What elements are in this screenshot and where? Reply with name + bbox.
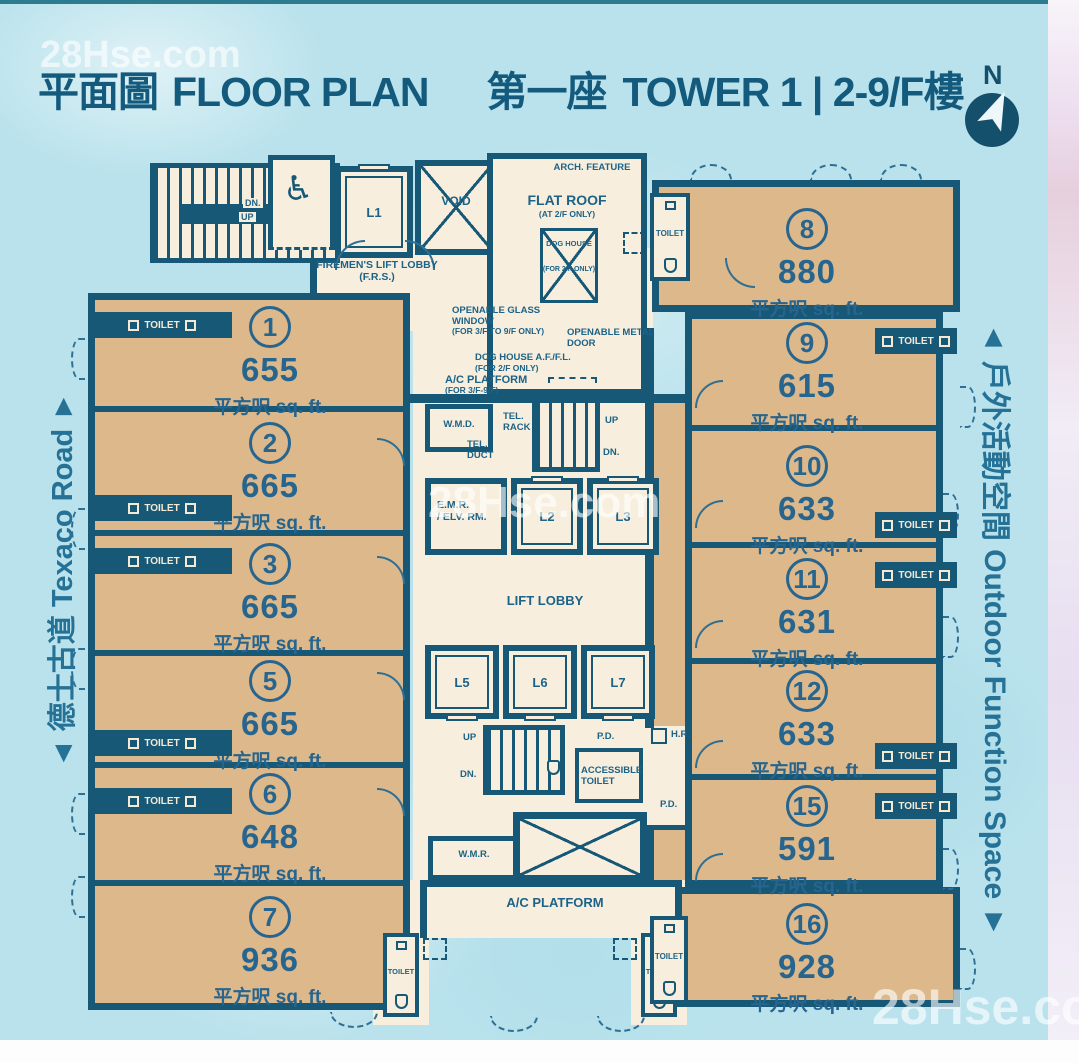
watermark-top-left: 28Hse.com (40, 34, 241, 77)
dog-house-affl-label: DOG HOUSE A.F./F.L. (FOR 2/F ONLY) (475, 353, 595, 373)
window-arc (71, 793, 87, 835)
lift-l1-label: L1 (366, 205, 381, 220)
unit-area-unit: 平方呎 sq. ft. (214, 629, 327, 656)
ac-platform-bottom-label: A/C PLATFORM (445, 896, 665, 911)
wmd-label: W.M.D. (425, 420, 493, 431)
unit-area-unit: 平方呎 sq. ft. (214, 859, 327, 886)
unit-area-unit: 平方呎 sq. ft. (751, 871, 864, 898)
openable-metal-door-label: OPENABLE METAL DOOR (567, 328, 659, 349)
toilet-icon (128, 556, 139, 567)
unit-area: 633 (778, 490, 836, 528)
toilet-text: TOILET (581, 777, 661, 788)
firemens-lobby-label: FIREMEN'S LIFT LOBBY (F.R.S.) (313, 260, 441, 284)
watermark-center: 28Hse.com (428, 478, 660, 528)
tel-rack-label: TEL. RACK (503, 412, 545, 433)
unit-number: 6 (249, 773, 291, 815)
unit-label-8: 8 880 平方呎 sq. ft. (707, 208, 907, 321)
toilet-bar-unit-1: TOILET (92, 312, 232, 338)
unit-label-10: 10 633 平方呎 sq. ft. (707, 445, 907, 558)
toilet-icon (185, 738, 196, 749)
unit-area: 655 (241, 351, 299, 389)
unit-area-unit: 平方呎 sq. ft. (751, 756, 864, 783)
unit-area: 928 (778, 948, 836, 986)
window-arc (943, 616, 959, 658)
unit-area: 631 (778, 603, 836, 641)
lift-l7: L7 (581, 645, 655, 719)
unit-area-unit: 平方呎 sq. ft. (214, 392, 327, 419)
toilet-label: TOILET (388, 968, 415, 976)
lift-l6-label: L6 (532, 675, 547, 690)
toilet-label: TOILET (898, 570, 933, 581)
toilet-icon (185, 796, 196, 807)
unit-area-unit: 平方呎 sq. ft. (751, 989, 864, 1016)
window-arc (597, 1016, 645, 1032)
openable-glass-window-note: (FOR 3/F TO 9/F ONLY) (452, 327, 564, 337)
arch-feature-label: ARCH. FEATURE (527, 163, 657, 174)
toilet-icon (185, 503, 196, 514)
toilet-bowl-icon (547, 760, 560, 775)
toilet-icon (939, 336, 950, 347)
unit-area: 615 (778, 367, 836, 405)
stair-dn-label: DN. (460, 770, 476, 781)
toilet-bar-unit-6: TOILET (92, 788, 232, 814)
unit-number: 11 (786, 558, 828, 600)
lift-door (358, 164, 390, 171)
dog-house-affl-note: (FOR 2/F ONLY) (475, 364, 595, 374)
openable-glass-window-label: OPENABLE GLASS WINDOW (FOR 3/F TO 9/F ON… (452, 306, 564, 337)
toilet-label: TOILET (898, 336, 933, 347)
window-arc (943, 848, 959, 890)
ac-platform-mid-label: A/C PLATFORM (FOR 3/F-9/F) (445, 374, 555, 396)
unit-number: 12 (786, 670, 828, 712)
pd-label-2: P.D. (660, 800, 677, 811)
void-label: VOID (415, 195, 497, 208)
toilet-label: TOILET (656, 230, 684, 239)
window-arc (71, 648, 87, 690)
unit-8-toilet-room: TOILET (650, 193, 690, 281)
wheelchair-icon: ♿ (283, 170, 313, 208)
unit-area: 880 (778, 253, 836, 291)
unit-area-unit: 平方呎 sq. ft. (751, 408, 864, 435)
top-duct-box (623, 232, 646, 254)
lift-l5-label: L5 (454, 675, 469, 690)
toilet-label: TOILET (144, 320, 179, 331)
ac-platform-dashed-box (548, 377, 597, 396)
toilet-label: TOILET (144, 796, 179, 807)
toilet-label: TOILET (144, 738, 179, 749)
lift-door (524, 714, 556, 721)
unit-area: 665 (241, 467, 299, 505)
unit-16-toilet-room: TOILET (650, 916, 688, 1004)
toilet-label: TOILET (144, 556, 179, 567)
bottom-left-toilet-room: TOILET (383, 933, 419, 1017)
unit-number: 10 (786, 445, 828, 487)
toilet-icon (185, 320, 196, 331)
window-arc (880, 164, 922, 180)
toilet-bowl-icon (663, 981, 676, 996)
lift-l6: L6 (503, 645, 577, 719)
unit-area: 665 (241, 588, 299, 626)
toilet-bar-unit-9: TOILET (875, 328, 957, 354)
toilet-icon (882, 520, 893, 531)
stair-up-label: UP (463, 733, 476, 744)
cistern-icon (664, 924, 675, 933)
unit-number: 1 (249, 306, 291, 348)
cistern-icon (665, 201, 676, 210)
stair-dn-label: DN. (603, 448, 619, 459)
lift-l7-label: L7 (610, 675, 625, 690)
window-arc (810, 164, 852, 180)
unit-number: 2 (249, 422, 291, 464)
unit-number: 5 (249, 660, 291, 702)
toilet-bar-unit-2: TOILET (92, 495, 232, 521)
unit-number: 8 (786, 208, 828, 250)
stair-dn-label: DN. (243, 198, 263, 208)
unit-area: 633 (778, 715, 836, 753)
unit-area-unit: 平方呎 sq. ft. (751, 294, 864, 321)
road-label-outdoor-space: ◄ 戶外活動空間 Outdoor Function Space ► (980, 280, 1020, 980)
toilet-label: TOILET (898, 751, 933, 762)
toilet-bar-unit-12: TOILET (875, 743, 957, 769)
cistern-icon (396, 941, 407, 950)
flat-roof-note: (AT 2/F ONLY) (505, 210, 629, 220)
dog-house-label: DOG HOUSE (540, 240, 598, 248)
toilet-icon (939, 801, 950, 812)
floor-plan: 1 655 平方呎 sq. ft. 2 665 平方呎 sq. ft. 3 66… (85, 148, 965, 1048)
unit-number: 16 (786, 903, 828, 945)
hr-label: H.R. (671, 730, 690, 741)
tel-duct-label: TEL. DUCT (467, 440, 509, 461)
toilet-bowl-icon (395, 994, 408, 1009)
toilet-icon (939, 751, 950, 762)
dog-house-note: (FOR 2/F ONLY) (538, 266, 600, 274)
toilet-label: TOILET (655, 953, 683, 962)
lift-door (446, 714, 478, 721)
flat-roof-label: FLAT ROOF (505, 193, 629, 209)
window-arc (690, 164, 732, 180)
toilet-label: TOILET (898, 801, 933, 812)
window-arc (960, 386, 976, 428)
stair-up-label: UP (239, 212, 256, 222)
unit-area: 936 (241, 941, 299, 979)
pd-label-1: P.D. (597, 732, 614, 743)
unit-number: 15 (786, 785, 828, 827)
toilet-bar-unit-5: TOILET (92, 730, 232, 756)
unit-number: 7 (249, 896, 291, 938)
bottom-left-duct-box (423, 938, 447, 960)
toilet-icon (939, 520, 950, 531)
toilet-label: TOILET (144, 503, 179, 514)
lift-l1: L1 (335, 166, 413, 258)
lift-lobby-label: LIFT LOBBY (475, 594, 615, 609)
toilet-bowl-icon (664, 258, 677, 273)
toilet-icon (128, 503, 139, 514)
toilet-icon (882, 336, 893, 347)
hr-box (651, 728, 667, 744)
unit-area: 591 (778, 830, 836, 868)
unit-label-7: 7 936 平方呎 sq. ft. (170, 896, 370, 1009)
unit-area-unit: 平方呎 sq. ft. (751, 531, 864, 558)
unit-number: 3 (249, 543, 291, 585)
toilet-icon (882, 570, 893, 581)
ac-platform-mid-note: (FOR 3/F-9/F) (445, 386, 555, 396)
toilet-label: TOILET (898, 520, 933, 531)
lift-door (602, 714, 634, 721)
toilet-bar-unit-10: TOILET (875, 512, 957, 538)
wmr-label: W.M.R. (428, 850, 520, 861)
window-arc (71, 508, 87, 550)
unit-area: 665 (241, 705, 299, 743)
toilet-icon (882, 801, 893, 812)
window-arc (330, 1012, 378, 1028)
toilet-icon (939, 570, 950, 581)
window-arc (71, 876, 87, 918)
toilet-icon (128, 320, 139, 331)
north-compass-icon (959, 87, 1025, 153)
unit-area-unit: 平方呎 sq. ft. (751, 644, 864, 671)
unit-number: 9 (786, 322, 828, 364)
af-cross-box (513, 812, 647, 882)
toilet-bar-unit-15: TOILET (875, 793, 957, 819)
unit-label-5: 5 665 平方呎 sq. ft. (170, 660, 370, 773)
window-arc (71, 338, 87, 380)
top-edge-line (0, 0, 1050, 4)
core-staircase-upper (532, 398, 600, 472)
tower-en: TOWER 1 | 2-9/F樓 (622, 58, 963, 118)
bottom-right-duct-box (613, 938, 637, 960)
toilet-icon (128, 796, 139, 807)
page-right-edge (1048, 0, 1079, 1063)
toilet-icon (128, 738, 139, 749)
toilet-icon (882, 751, 893, 762)
toilet-bar-unit-11: TOILET (875, 562, 957, 588)
unit-area-unit: 平方呎 sq. ft. (214, 982, 327, 1009)
watermark-bottom-right: 28Hse.com (872, 978, 1079, 1036)
stair-up-label: UP (605, 416, 618, 427)
window-arc (490, 1016, 538, 1032)
toilet-icon (185, 556, 196, 567)
tower-zh: 第一座 (486, 58, 606, 118)
road-label-texaco: ◄ 德士古道 Texaco Road ► (39, 320, 75, 840)
accessible-toilet-label: ACCESSIBLE TOILET (581, 766, 661, 787)
toilet-bar-unit-3: TOILET (92, 548, 232, 574)
unit-area: 648 (241, 818, 299, 856)
lift-l5: L5 (425, 645, 499, 719)
openable-glass-window-text: OPENABLE GLASS WINDOW (452, 306, 564, 327)
